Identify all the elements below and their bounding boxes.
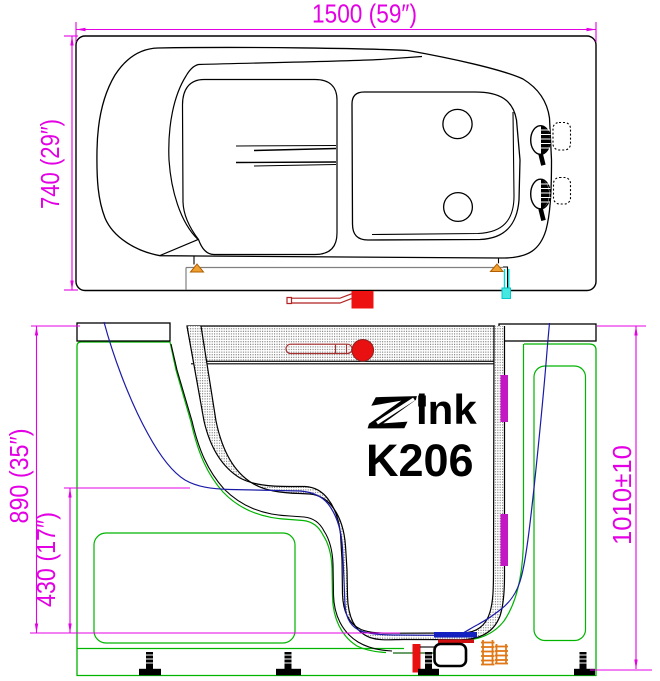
svg-text:1010±10: 1010±10 (607, 445, 637, 545)
svg-text:740 (29″): 740 (29″) (35, 119, 65, 209)
svg-text:430 (17″): 430 (17″) (31, 512, 61, 607)
svg-text:1500 (59″): 1500 (59″) (312, 0, 417, 29)
svg-text:K206: K206 (366, 435, 474, 486)
svg-text:ink: ink (416, 386, 477, 433)
svg-text:890 (35″): 890 (35″) (4, 429, 34, 524)
